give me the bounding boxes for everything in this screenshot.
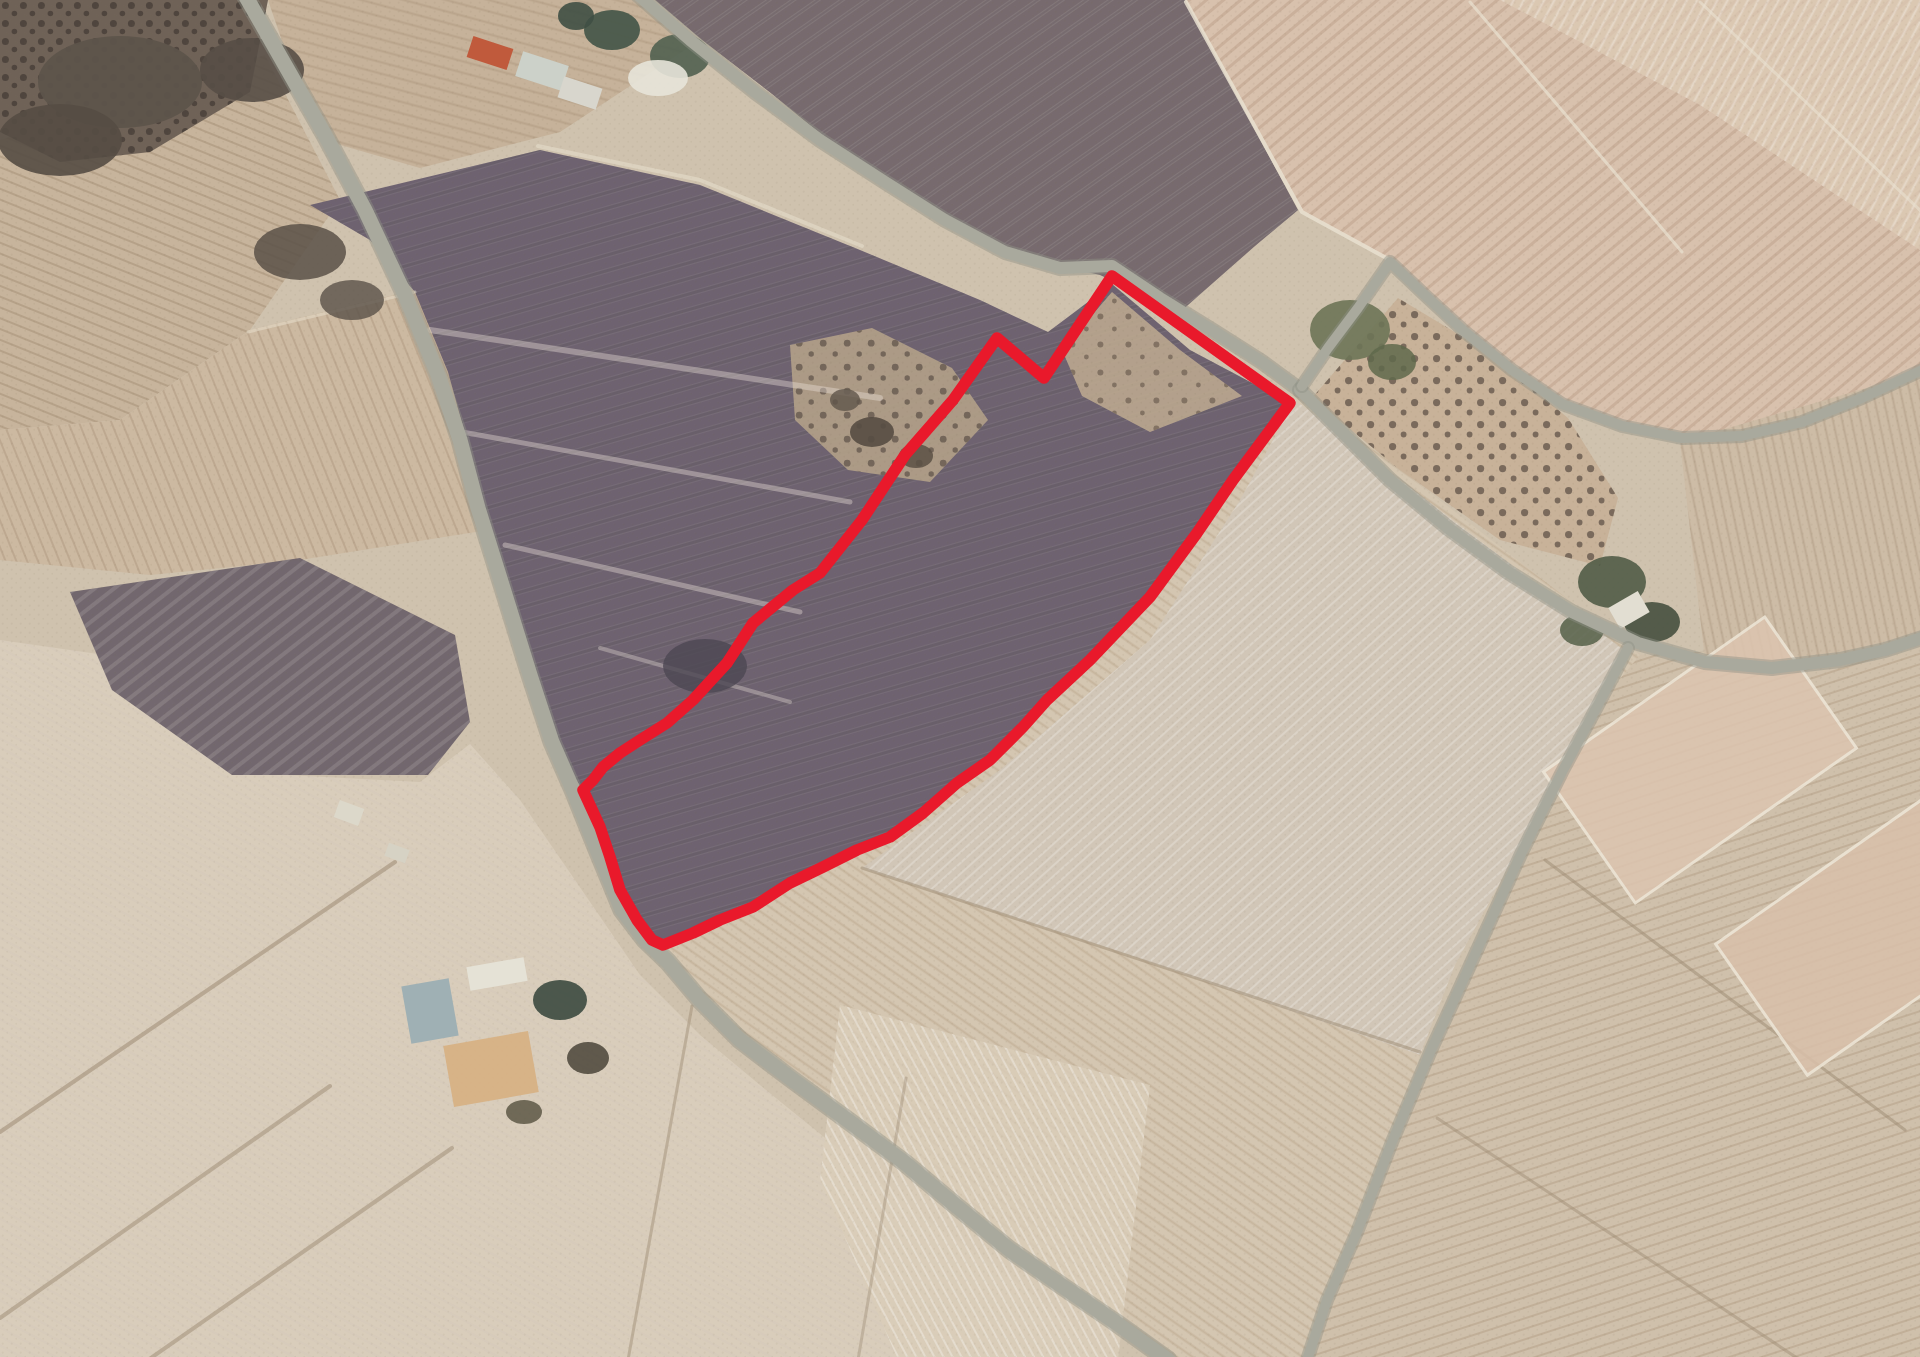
building-blue-farm — [401, 978, 458, 1043]
tree-farm-south — [533, 980, 587, 1020]
tree-small — [830, 389, 860, 411]
tree-farm-south — [506, 1100, 542, 1124]
tree-cluster — [254, 224, 346, 280]
aerial-map-view — [0, 0, 1920, 1357]
tree-green — [558, 2, 594, 30]
grain-overlay-texture — [0, 0, 1920, 1357]
satellite-image — [0, 0, 1920, 1357]
tree-cluster — [320, 280, 384, 320]
light-yard-patch — [628, 60, 688, 96]
tree-farm-south — [567, 1042, 609, 1074]
tree-green-junction — [1368, 344, 1416, 380]
tree-small — [850, 417, 894, 447]
tree-cluster — [0, 104, 122, 176]
